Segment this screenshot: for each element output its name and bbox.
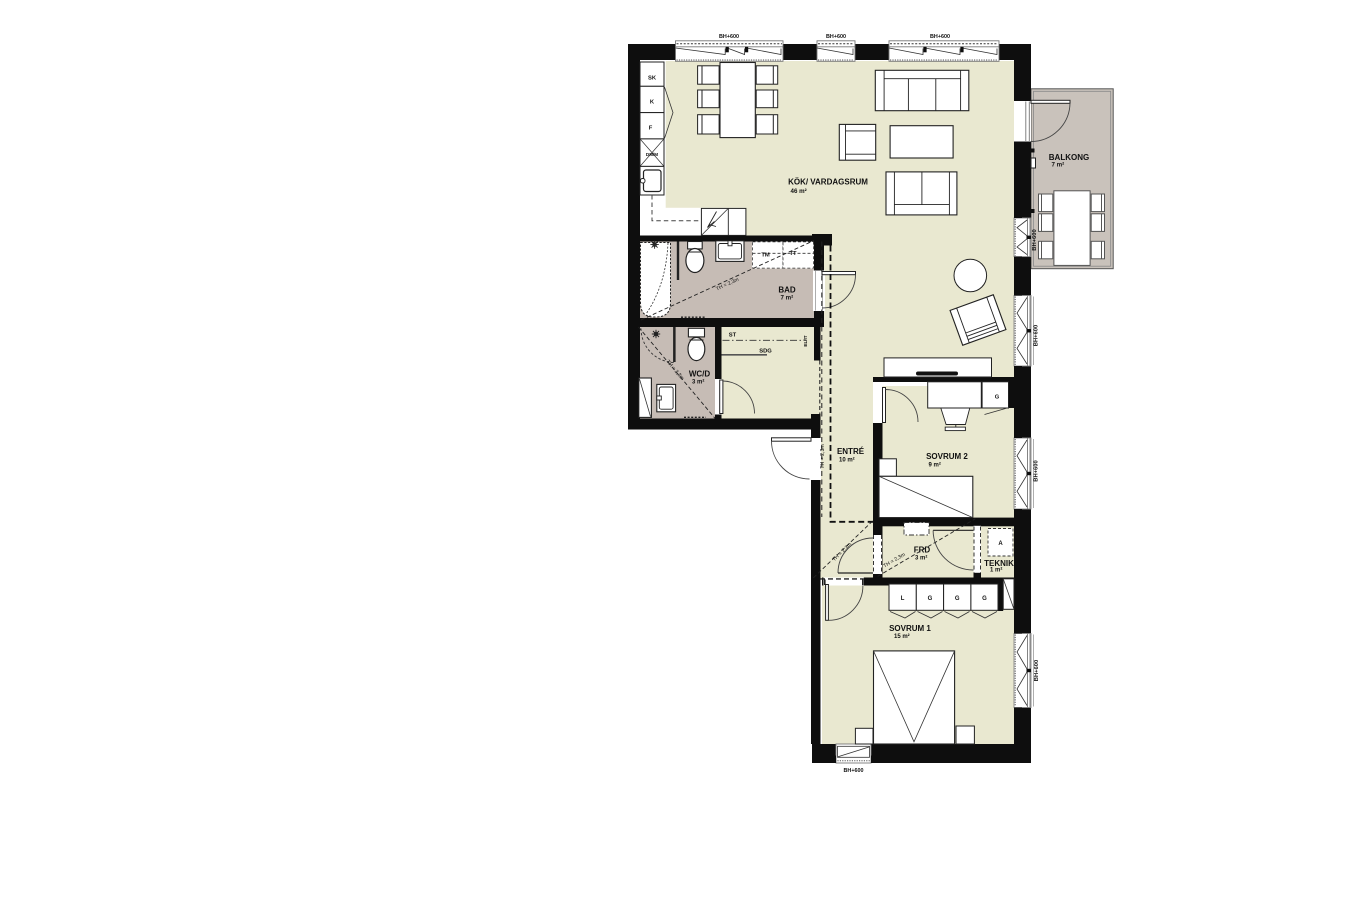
svg-text:BH+600: BH+600 <box>826 34 846 40</box>
svg-text:FRD: FRD <box>914 545 931 554</box>
svg-text:7 m²: 7 m² <box>1052 162 1065 169</box>
svg-text:L: L <box>901 596 905 602</box>
svg-text:BH+600: BH+600 <box>719 34 739 40</box>
svg-text:WC/D: WC/D <box>689 370 711 379</box>
svg-text:3 m²: 3 m² <box>692 378 704 385</box>
svg-text:BH+600: BH+600 <box>930 34 950 40</box>
svg-text:BALKONG: BALKONG <box>1049 153 1089 162</box>
svg-text:7 m²: 7 m² <box>781 294 794 301</box>
svg-text:SK: SK <box>648 76 657 82</box>
svg-text:BH+600: BH+600 <box>1034 460 1040 481</box>
svg-text:BH+600: BH+600 <box>1032 229 1038 250</box>
svg-text:BH+600: BH+600 <box>1034 325 1040 346</box>
svg-text:G: G <box>928 596 933 602</box>
svg-text:BH+600: BH+600 <box>844 768 864 774</box>
svg-text:F: F <box>649 126 653 132</box>
svg-text:SOVRUM 2: SOVRUM 2 <box>926 452 968 461</box>
svg-text:9 m²: 9 m² <box>929 461 941 468</box>
svg-text:BAD: BAD <box>778 286 796 295</box>
svg-text:SDG: SDG <box>759 348 772 354</box>
svg-text:3 m²: 3 m² <box>915 554 927 561</box>
svg-text:EL/IT: EL/IT <box>803 335 808 346</box>
svg-text:10 m²: 10 m² <box>839 457 855 464</box>
svg-text:46 m²: 46 m² <box>791 188 807 195</box>
svg-text:ENTRÉ: ENTRÉ <box>837 447 865 456</box>
svg-text:1 m²: 1 m² <box>990 567 1002 574</box>
svg-text:TH = 2,3m: TH = 2,3m <box>820 444 826 468</box>
svg-text:BH+600: BH+600 <box>1034 660 1040 681</box>
svg-text:A: A <box>998 541 1003 547</box>
svg-text:G: G <box>995 395 1000 401</box>
svg-text:G: G <box>955 596 960 602</box>
svg-text:G: G <box>982 596 987 602</box>
svg-text:SOVRUM 1: SOVRUM 1 <box>889 624 931 633</box>
svg-text:TT: TT <box>789 251 797 257</box>
svg-text:TEKNIK: TEKNIK <box>984 559 1014 568</box>
svg-text:15 m²: 15 m² <box>894 633 910 640</box>
svg-text:DM/M: DM/M <box>646 152 658 157</box>
svg-text:TM: TM <box>761 253 770 259</box>
svg-text:KÖK/ VARDAGSRUM: KÖK/ VARDAGSRUM <box>788 178 868 187</box>
svg-text:ST: ST <box>729 332 737 338</box>
